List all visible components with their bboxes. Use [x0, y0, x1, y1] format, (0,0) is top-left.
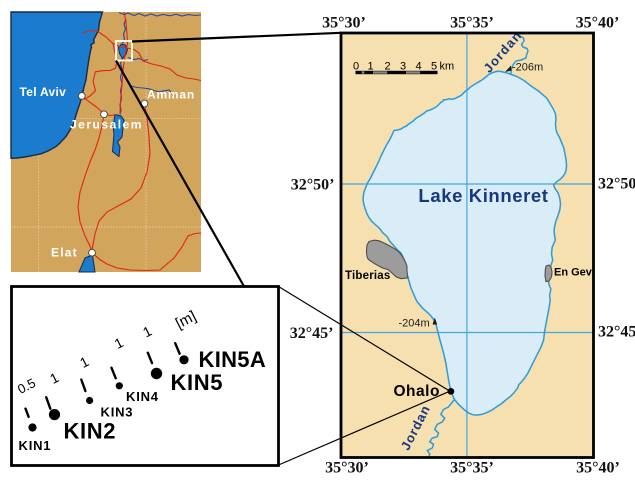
svg-text:32°50’: 32°50’ [291, 177, 335, 194]
svg-text:35°40’: 35°40’ [576, 460, 620, 477]
svg-text:-204m: -204m [399, 318, 430, 330]
svg-text:KIN5: KIN5 [171, 370, 224, 395]
svg-text:4: 4 [415, 60, 421, 72]
svg-text:En Gev: En Gev [554, 267, 593, 279]
svg-text:Tiberias: Tiberias [345, 270, 391, 282]
svg-text:2: 2 [384, 60, 390, 72]
svg-text:Amman: Amman [147, 88, 195, 102]
svg-text:32°50’: 32°50’ [598, 176, 635, 193]
svg-text:Tel Aviv: Tel Aviv [20, 85, 67, 99]
svg-text:KIN1: KIN1 [19, 438, 52, 453]
svg-text:Lake Kinneret: Lake Kinneret [418, 185, 548, 206]
svg-text:0: 0 [353, 60, 359, 72]
svg-text:35°35’: 35°35’ [450, 460, 494, 477]
svg-text:KIN2: KIN2 [64, 419, 117, 444]
svg-text:35°35’: 35°35’ [450, 15, 494, 32]
svg-text:35°30’: 35°30’ [322, 15, 366, 32]
svg-text:Ohalo: Ohalo [394, 383, 440, 400]
svg-text:Jerusalem: Jerusalem [70, 118, 143, 132]
svg-text:KIN3: KIN3 [101, 405, 134, 420]
svg-text:km: km [440, 60, 455, 72]
svg-text:KIN5A: KIN5A [199, 347, 267, 372]
svg-text:32°45’: 32°45’ [598, 324, 635, 341]
svg-text:32°45’: 32°45’ [290, 325, 334, 342]
svg-text:KIN4: KIN4 [126, 389, 159, 404]
svg-text:1: 1 [367, 60, 373, 72]
svg-text:Elat: Elat [51, 246, 78, 260]
svg-text:5: 5 [431, 60, 437, 72]
svg-text:35°30’: 35°30’ [325, 460, 369, 477]
svg-text:35°40’: 35°40’ [576, 15, 620, 32]
svg-text:3: 3 [400, 60, 406, 72]
svg-text:-206m: -206m [512, 62, 543, 74]
